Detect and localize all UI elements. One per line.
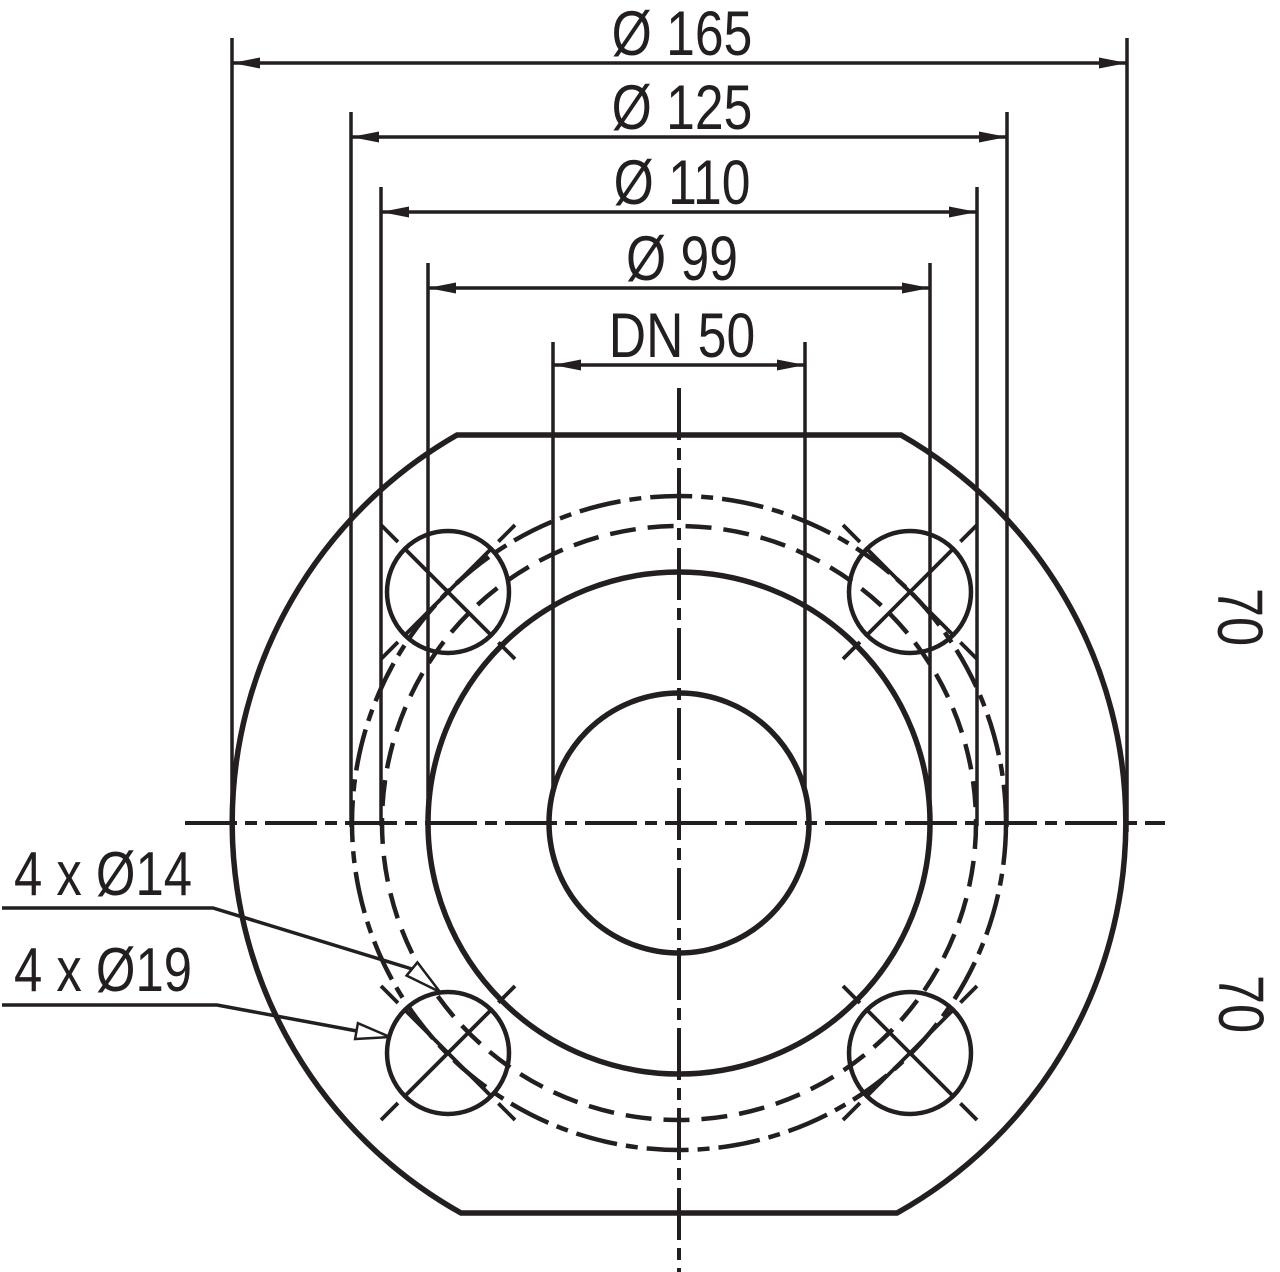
dimension-label-99: Ø 99 <box>626 224 738 294</box>
vertical-dimension-lower-text: 70 <box>1205 975 1276 1033</box>
leader-arrow-hole-19 <box>355 1023 390 1039</box>
dimension-label-165: Ø 165 <box>612 0 753 69</box>
dimension-arrow <box>949 207 977 218</box>
hole-callout-19-text: 4 x Ø19 <box>14 936 192 1005</box>
dimension-label-165-text: Ø 165 <box>612 0 753 69</box>
hole-callout-14-label: 4 x Ø14 <box>14 840 192 909</box>
dimension-label-125-text: Ø 125 <box>612 73 753 143</box>
dimension-arrow <box>428 283 456 294</box>
hole-callout-19-label: 4 x Ø19 <box>14 936 192 1005</box>
dimension-label-125: Ø 125 <box>612 73 753 143</box>
dimension-arrow <box>902 283 930 294</box>
vertical-dimension-upper-text: 70 <box>1204 588 1275 646</box>
dimension-arrow <box>979 132 1007 143</box>
leader-line-hole-19 <box>2 1005 357 1031</box>
leader-arrow-hole-14 <box>407 962 440 992</box>
dimension-arrow <box>381 207 409 218</box>
flange-drawing-page: Ø 165 Ø 125 Ø 110 Ø 99 DN 50 70 70 4 x Ø… <box>0 0 1280 1272</box>
dimension-label-110: Ø 110 <box>614 148 751 218</box>
dimension-arrow <box>553 360 581 371</box>
dimension-label-110-text: Ø 110 <box>614 148 751 218</box>
dimension-label-99-text: Ø 99 <box>626 224 738 294</box>
dimension-arrow <box>777 360 805 371</box>
dimension-arrow <box>351 132 379 143</box>
flange-technical-drawing: Ø 165 Ø 125 Ø 110 Ø 99 DN 50 70 70 4 x Ø… <box>0 0 1280 1272</box>
hole-callout-19: 4 x Ø19 <box>2 936 390 1039</box>
hole-callout-14-text: 4 x Ø14 <box>14 840 192 909</box>
dimension-label-dn50: DN 50 <box>609 301 755 371</box>
dimension-arrow <box>232 58 260 69</box>
dimension-arrow <box>1099 58 1127 69</box>
dimension-label-dn50-text: DN 50 <box>609 301 755 371</box>
vertical-dimension-label-upper: 70 <box>1204 588 1275 646</box>
vertical-dimension-label-lower: 70 <box>1205 975 1276 1033</box>
